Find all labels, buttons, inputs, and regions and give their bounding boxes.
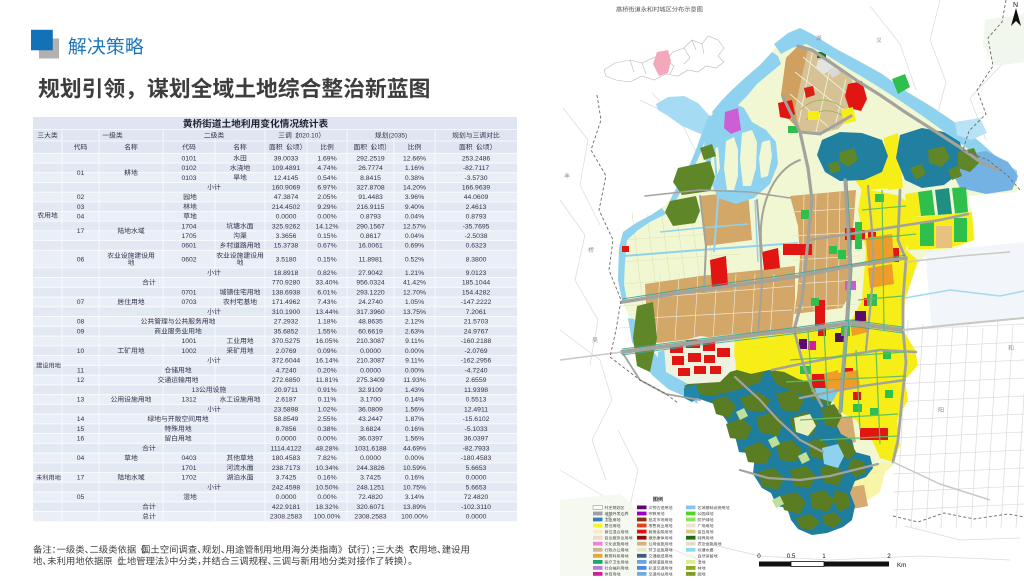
- svg-text:290.1567: 290.1567: [356, 223, 385, 230]
- svg-text:292.2519: 292.2519: [356, 156, 385, 163]
- svg-text:0: 0: [757, 553, 761, 560]
- svg-text:210.3087: 210.3087: [356, 338, 385, 345]
- svg-text:275.3409: 275.3409: [356, 377, 385, 384]
- svg-text:12.57%: 12.57%: [403, 223, 426, 230]
- svg-text:12: 12: [77, 377, 85, 384]
- svg-text:1.05%: 1.05%: [405, 299, 424, 306]
- svg-text:272.6850: 272.6850: [272, 377, 301, 384]
- svg-text:138.6938: 138.6938: [272, 290, 301, 297]
- svg-text:2.6187: 2.6187: [276, 397, 297, 404]
- svg-text:27.2932: 27.2932: [274, 319, 299, 326]
- svg-text:11.81%: 11.81%: [316, 377, 339, 384]
- svg-text:0.00%: 0.00%: [317, 436, 336, 443]
- svg-text:26.7774: 26.7774: [358, 165, 383, 172]
- svg-text:160.9069: 160.9069: [272, 185, 301, 192]
- svg-text:06: 06: [77, 256, 85, 263]
- svg-text:(2035): (2035): [389, 133, 407, 140]
- svg-text:2.4613: 2.4613: [466, 204, 487, 211]
- svg-text:Km: Km: [897, 562, 906, 569]
- svg-text:36.0397: 36.0397: [358, 436, 383, 443]
- svg-text:8.7856: 8.7856: [276, 426, 297, 433]
- svg-text:210.3087: 210.3087: [356, 358, 385, 365]
- svg-text:1.69%: 1.69%: [317, 156, 336, 163]
- svg-text:-147.2222: -147.2222: [461, 299, 492, 306]
- svg-text:242.4598: 242.4598: [272, 485, 301, 492]
- svg-text:60.6619: 60.6619: [358, 329, 383, 336]
- svg-text:166.9639: 166.9639: [462, 185, 491, 192]
- svg-text:0601: 0601: [181, 243, 196, 250]
- svg-text:0.00%: 0.00%: [405, 455, 424, 462]
- svg-text:3.7425: 3.7425: [360, 475, 381, 482]
- svg-text:-4.7240: -4.7240: [464, 368, 487, 375]
- svg-text:1.43%: 1.43%: [405, 387, 424, 394]
- svg-text:0.0000: 0.0000: [360, 368, 381, 375]
- svg-text:14: 14: [77, 416, 85, 423]
- svg-text:1001: 1001: [181, 338, 196, 345]
- svg-text:48.8635: 48.8635: [358, 319, 383, 326]
- svg-text:39.0033: 39.0033: [274, 156, 299, 163]
- svg-text:0.0000: 0.0000: [276, 494, 297, 501]
- svg-text:1: 1: [822, 553, 826, 560]
- svg-text:05: 05: [77, 494, 85, 501]
- svg-text:0103: 0103: [181, 175, 196, 182]
- svg-text:1.21%: 1.21%: [405, 270, 424, 277]
- svg-text:1.16%: 1.16%: [405, 165, 424, 172]
- svg-text:1.56%: 1.56%: [405, 436, 424, 443]
- svg-text:16: 16: [77, 436, 85, 443]
- svg-text:370.5275: 370.5275: [272, 338, 301, 345]
- svg-text:02: 02: [77, 194, 85, 201]
- svg-text:0.67%: 0.67%: [317, 243, 336, 250]
- svg-text:72.4820: 72.4820: [464, 494, 489, 501]
- svg-text:1002: 1002: [181, 348, 196, 355]
- svg-text:100.00%: 100.00%: [401, 514, 428, 521]
- svg-text:2308.2583: 2308.2583: [270, 514, 302, 521]
- svg-text:0.0000: 0.0000: [276, 214, 297, 221]
- svg-text:0102: 0102: [181, 165, 196, 172]
- svg-text:1.18%: 1.18%: [317, 319, 336, 326]
- svg-text:1702: 1702: [181, 475, 196, 482]
- svg-text:4.7240: 4.7240: [276, 368, 297, 375]
- svg-text:1031.6188: 1031.6188: [354, 446, 386, 453]
- svg-text:-102.3110: -102.3110: [461, 504, 491, 511]
- svg-text:09: 09: [77, 329, 85, 336]
- svg-text:-2.0769: -2.0769: [464, 348, 487, 355]
- svg-text:7.2061: 7.2061: [466, 309, 487, 316]
- svg-text:0.14%: 0.14%: [405, 397, 424, 404]
- svg-text:3.1700: 3.1700: [360, 397, 381, 404]
- svg-text:0.38%: 0.38%: [317, 426, 336, 433]
- svg-text:5.6653: 5.6653: [466, 465, 487, 472]
- svg-text:-2.5038: -2.5038: [464, 233, 487, 240]
- svg-text:0.00%: 0.00%: [405, 348, 424, 355]
- svg-text:0.0000: 0.0000: [466, 514, 487, 521]
- svg-text:214.4502: 214.4502: [272, 204, 301, 211]
- svg-text:-180.4583: -180.4583: [461, 455, 492, 462]
- svg-text:12.4911: 12.4911: [464, 407, 488, 414]
- svg-text:16.05%: 16.05%: [315, 338, 338, 345]
- svg-text:17: 17: [77, 228, 85, 235]
- svg-text:2.63%: 2.63%: [405, 329, 424, 336]
- svg-text:21.5703: 21.5703: [464, 319, 489, 326]
- svg-text:0.91%: 0.91%: [317, 387, 336, 394]
- svg-text:0.5: 0.5: [787, 553, 796, 560]
- svg-text:-160.2188: -160.2188: [461, 338, 492, 345]
- svg-text:1704: 1704: [181, 223, 196, 230]
- svg-text:0.09%: 0.09%: [317, 348, 336, 355]
- svg-text:2.55%: 2.55%: [317, 416, 336, 423]
- svg-text:2308.2583: 2308.2583: [354, 514, 386, 521]
- svg-text:0.16%: 0.16%: [405, 475, 424, 482]
- svg-text:3.14%: 3.14%: [405, 494, 424, 501]
- svg-text:13: 13: [77, 397, 85, 404]
- svg-text:41.42%: 41.42%: [403, 280, 426, 287]
- svg-text:1114.4122: 1114.4122: [270, 446, 301, 453]
- svg-text:5.6653: 5.6653: [466, 485, 487, 492]
- svg-text:9.40%: 9.40%: [405, 204, 424, 211]
- svg-text:2.0769: 2.0769: [276, 348, 297, 355]
- svg-text:0.15%: 0.15%: [317, 256, 336, 263]
- svg-text:-162.2956: -162.2956: [461, 358, 492, 365]
- svg-text:154.4282: 154.4282: [462, 290, 491, 297]
- svg-text:0.0000: 0.0000: [360, 348, 381, 355]
- svg-text:0.82%: 0.82%: [317, 270, 336, 277]
- svg-text:08: 08: [77, 319, 85, 326]
- svg-text:0.8793: 0.8793: [466, 214, 487, 221]
- svg-text:422.9181: 422.9181: [272, 504, 301, 511]
- svg-text:43.2447: 43.2447: [358, 416, 383, 423]
- svg-text:N: N: [1013, 2, 1018, 9]
- svg-text:16.14%: 16.14%: [315, 358, 338, 365]
- svg-text:0.52%: 0.52%: [405, 256, 424, 263]
- svg-text:12.66%: 12.66%: [403, 156, 426, 163]
- svg-text:13.44%: 13.44%: [315, 309, 338, 316]
- svg-text:23.5898: 23.5898: [274, 407, 299, 414]
- svg-text:0.00%: 0.00%: [405, 368, 424, 375]
- svg-text:3.3656: 3.3656: [276, 233, 297, 240]
- svg-text:18.8918: 18.8918: [274, 270, 299, 277]
- svg-text:253.2486: 253.2486: [462, 156, 491, 163]
- svg-text:-82.7117: -82.7117: [463, 165, 490, 172]
- svg-text:24.2740: 24.2740: [358, 299, 383, 306]
- svg-text:0403: 0403: [181, 455, 196, 462]
- svg-text:320.6071: 320.6071: [356, 504, 385, 511]
- svg-text:0.04%: 0.04%: [405, 214, 424, 221]
- svg-text:11.9398: 11.9398: [464, 387, 488, 394]
- svg-text:44.0609: 44.0609: [464, 194, 489, 201]
- svg-text:956.0324: 956.0324: [356, 280, 385, 287]
- svg-text:32.9109: 32.9109: [358, 387, 383, 394]
- svg-text:0.15%: 0.15%: [317, 233, 336, 240]
- svg-text:8.8415: 8.8415: [360, 175, 381, 182]
- svg-text:100.00%: 100.00%: [314, 514, 341, 521]
- svg-text:0602: 0602: [181, 256, 196, 263]
- svg-text:4.74%: 4.74%: [317, 165, 336, 172]
- svg-text:04: 04: [77, 214, 85, 221]
- svg-text:3.7425: 3.7425: [276, 475, 297, 482]
- svg-text:-15.6102: -15.6102: [463, 416, 490, 423]
- svg-text:10.75%: 10.75%: [403, 485, 426, 492]
- svg-text:1.56%: 1.56%: [405, 407, 424, 414]
- svg-text:0.16%: 0.16%: [317, 475, 336, 482]
- svg-text:72.4820: 72.4820: [358, 494, 383, 501]
- svg-text:310.1900: 310.1900: [272, 309, 301, 316]
- svg-text:7.43%: 7.43%: [317, 299, 336, 306]
- svg-text:-82.7933: -82.7933: [463, 446, 490, 453]
- svg-text:01: 01: [77, 170, 85, 177]
- svg-text:58.8549: 58.8549: [274, 416, 299, 423]
- svg-text:10: 10: [77, 348, 85, 355]
- svg-text:109.4891: 109.4891: [272, 165, 301, 172]
- svg-text:0.16%: 0.16%: [405, 426, 424, 433]
- svg-text:04: 04: [77, 455, 85, 462]
- svg-text:0101: 0101: [181, 156, 196, 163]
- svg-text:12.4145: 12.4145: [274, 175, 299, 182]
- svg-text:07: 07: [77, 299, 85, 306]
- svg-text:-3.5730: -3.5730: [464, 175, 487, 182]
- svg-text:15.3738: 15.3738: [274, 243, 299, 250]
- svg-text:1.87%: 1.87%: [405, 416, 424, 423]
- svg-text:171.4962: 171.4962: [272, 299, 301, 306]
- svg-text:20.9711: 20.9711: [274, 387, 298, 394]
- svg-text:13: 13: [192, 387, 200, 394]
- svg-text:18.32%: 18.32%: [315, 504, 338, 511]
- svg-text:03: 03: [77, 204, 85, 211]
- svg-text:0703: 0703: [181, 299, 196, 306]
- svg-text:9.0123: 9.0123: [466, 270, 487, 277]
- svg-text:2.12%: 2.12%: [405, 319, 424, 326]
- svg-text:17: 17: [77, 475, 85, 482]
- svg-text:10.50%: 10.50%: [315, 485, 338, 492]
- svg-text:12.70%: 12.70%: [403, 290, 426, 297]
- svg-text:6.01%: 6.01%: [317, 290, 336, 297]
- svg-text:33.40%: 33.40%: [315, 280, 338, 287]
- svg-text:244.3826: 244.3826: [356, 465, 385, 472]
- svg-text:11: 11: [77, 368, 84, 375]
- svg-text:16.0061: 16.0061: [358, 243, 383, 250]
- svg-text:2020.10: 2020.10: [295, 133, 319, 140]
- svg-text:48.28%: 48.28%: [315, 446, 338, 453]
- svg-text:11.8981: 11.8981: [358, 256, 382, 263]
- svg-text:325.9262: 325.9262: [272, 223, 301, 230]
- svg-text:35.6852: 35.6852: [274, 329, 299, 336]
- svg-text:185.1044: 185.1044: [462, 280, 491, 287]
- svg-text:2: 2: [887, 553, 891, 560]
- svg-text:0701: 0701: [181, 290, 196, 297]
- svg-text:0.00%: 0.00%: [317, 494, 336, 501]
- svg-text:2.6559: 2.6559: [466, 377, 487, 384]
- svg-text:24.9767: 24.9767: [464, 329, 489, 336]
- svg-text:0.54%: 0.54%: [317, 175, 336, 182]
- svg-text:36.0397: 36.0397: [464, 436, 489, 443]
- svg-text:36.0809: 36.0809: [358, 407, 383, 414]
- svg-text:9.11%: 9.11%: [405, 358, 424, 365]
- svg-text:0.00%: 0.00%: [317, 214, 336, 221]
- svg-text:0.5513: 0.5513: [466, 397, 487, 404]
- svg-text:0.0000: 0.0000: [360, 455, 381, 462]
- svg-text:1312: 1312: [181, 397, 196, 404]
- svg-text:0.0000: 0.0000: [276, 436, 297, 443]
- svg-text:238.7173: 238.7173: [272, 465, 301, 472]
- svg-text:10.59%: 10.59%: [403, 465, 426, 472]
- svg-text:216.9115: 216.9115: [357, 204, 385, 211]
- svg-text:248.1251: 248.1251: [356, 485, 385, 492]
- svg-text:9.29%: 9.29%: [317, 204, 336, 211]
- svg-text:0.38%: 0.38%: [405, 175, 424, 182]
- svg-text:180.4583: 180.4583: [272, 455, 301, 462]
- svg-text:13.89%: 13.89%: [403, 504, 426, 511]
- svg-text:1.55%: 1.55%: [317, 329, 336, 336]
- svg-text:3.5180: 3.5180: [276, 256, 297, 263]
- svg-text:1.02%: 1.02%: [317, 407, 336, 414]
- svg-text:8.3800: 8.3800: [466, 256, 487, 263]
- svg-text:770.9280: 770.9280: [272, 280, 301, 287]
- svg-text:372.6044: 372.6044: [272, 358, 301, 365]
- svg-text:1701: 1701: [181, 465, 196, 472]
- svg-text:327.8708: 327.8708: [356, 185, 385, 192]
- svg-text:14.12%: 14.12%: [315, 223, 338, 230]
- svg-text:10.34%: 10.34%: [315, 465, 338, 472]
- svg-text:293.1220: 293.1220: [356, 290, 385, 297]
- svg-text:0.04%: 0.04%: [405, 233, 424, 240]
- svg-text:0.8793: 0.8793: [360, 214, 381, 221]
- svg-text:0.8617: 0.8617: [360, 233, 381, 240]
- svg-text:11.93%: 11.93%: [403, 377, 426, 384]
- svg-text:15: 15: [77, 426, 85, 433]
- svg-text:13.75%: 13.75%: [403, 309, 426, 316]
- svg-text:44.69%: 44.69%: [403, 446, 426, 453]
- svg-text:6.97%: 6.97%: [317, 185, 336, 192]
- svg-text:27.9042: 27.9042: [358, 270, 383, 277]
- svg-text:-35.7695: -35.7695: [463, 223, 490, 230]
- svg-text:3.96%: 3.96%: [405, 194, 424, 201]
- svg-text:14.20%: 14.20%: [403, 185, 426, 192]
- svg-text:0.6323: 0.6323: [466, 243, 487, 250]
- svg-text:3.6824: 3.6824: [360, 426, 381, 433]
- svg-text:2.05%: 2.05%: [317, 194, 336, 201]
- svg-text:0.20%: 0.20%: [317, 368, 336, 375]
- svg-text:0.69%: 0.69%: [405, 243, 424, 250]
- svg-text:1705: 1705: [181, 233, 196, 240]
- svg-text:91.4483: 91.4483: [358, 194, 383, 201]
- svg-text:7.82%: 7.82%: [317, 455, 336, 462]
- svg-text:317.3960: 317.3960: [356, 309, 385, 316]
- svg-text:0.0000: 0.0000: [466, 475, 487, 482]
- svg-text:-5.1033: -5.1033: [464, 426, 487, 433]
- svg-text:0.11%: 0.11%: [318, 397, 337, 404]
- svg-text:9.11%: 9.11%: [405, 338, 424, 345]
- svg-text:47.3874: 47.3874: [274, 194, 299, 201]
